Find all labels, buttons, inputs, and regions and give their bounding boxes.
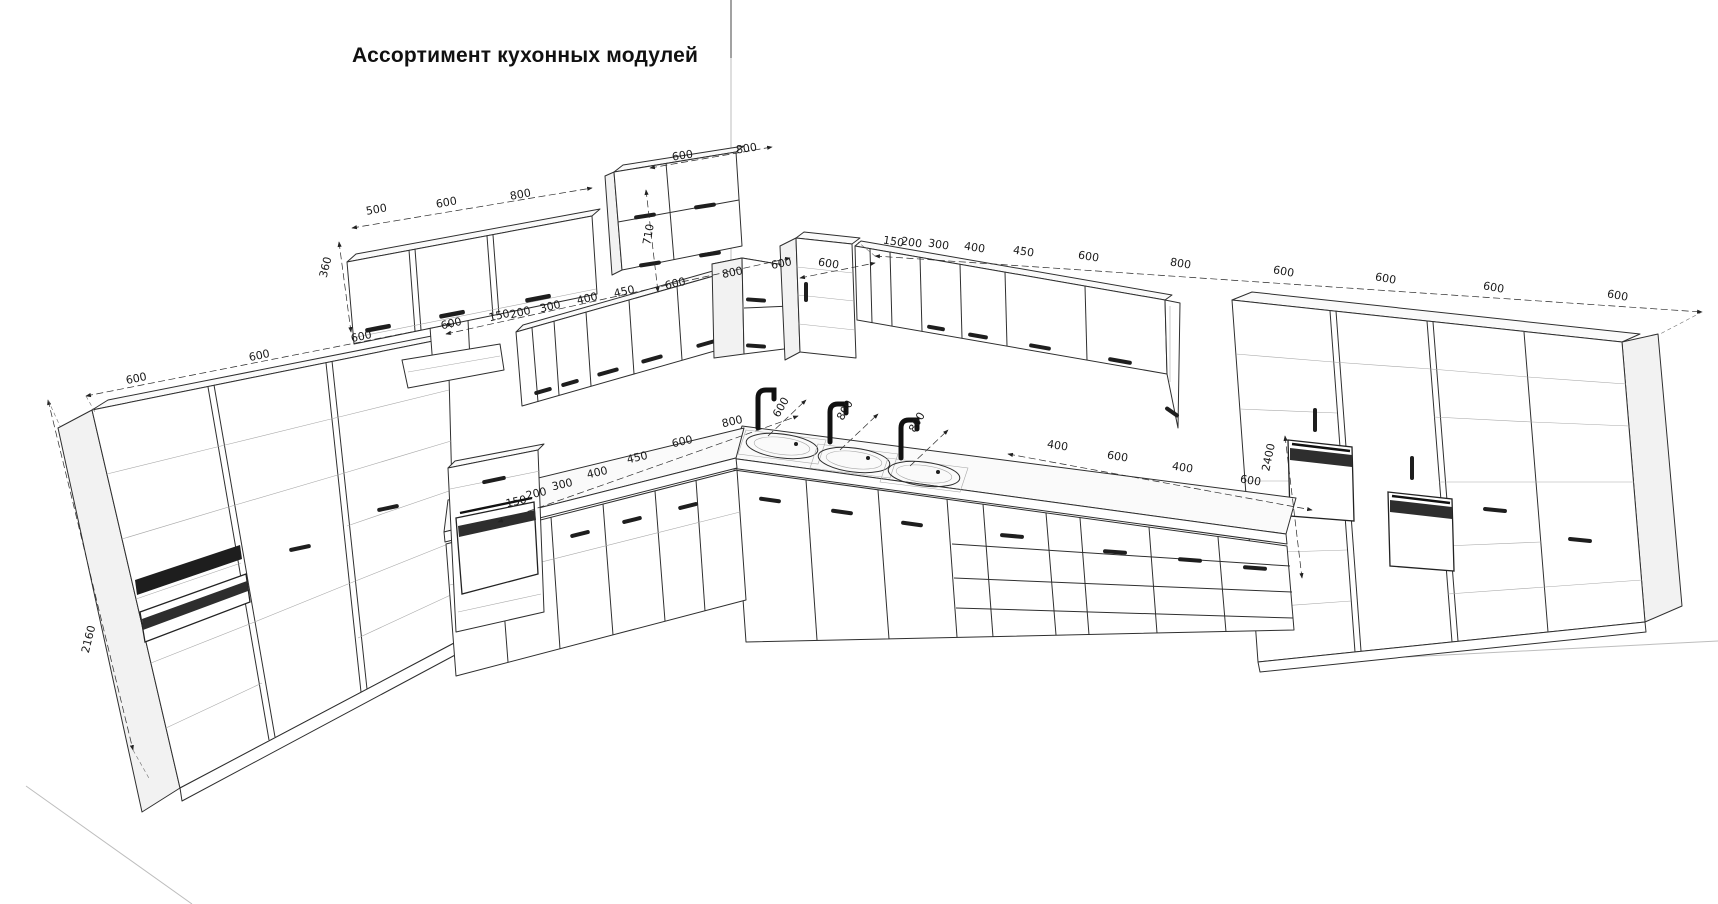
dim-label: 800 xyxy=(509,186,532,202)
dim-label: 600 xyxy=(435,194,458,210)
dim-label: 600 xyxy=(1077,248,1100,264)
built-in-oven xyxy=(1288,440,1354,521)
dim-label: 800 xyxy=(721,413,744,430)
dim-label: 450 xyxy=(1012,243,1035,259)
oven-housing-column xyxy=(448,444,544,632)
built-in-oven xyxy=(1388,492,1454,571)
dim-label: 500 xyxy=(365,201,388,217)
right-wall-cabinet-row xyxy=(855,241,1180,428)
dim-label: 800 xyxy=(735,140,758,156)
dim-label: 800 xyxy=(906,410,928,435)
dim-label: 800 xyxy=(1169,255,1192,271)
left-tall-cabinet-run xyxy=(58,330,462,812)
dim-label: 600 xyxy=(1272,263,1295,279)
door-handle xyxy=(1313,408,1317,432)
dim-label: 600 xyxy=(1374,270,1397,286)
dim-label: 400 xyxy=(1046,437,1069,453)
middle-wall-cabinet xyxy=(605,146,744,275)
dim-label: 400 xyxy=(1171,459,1194,475)
kitchen-line-drawing: 6006006002160360500600800710600800600150… xyxy=(0,0,1718,904)
right-base-run xyxy=(730,390,1296,642)
dim-label: 600 xyxy=(1482,279,1505,295)
dim-label: 2160 xyxy=(79,624,98,654)
dim-label: 600 xyxy=(125,370,148,387)
dim-label: 400 xyxy=(963,239,986,255)
dim-label: 360 xyxy=(317,255,335,279)
door-handle xyxy=(804,282,808,302)
door-handle xyxy=(1410,456,1414,480)
right-tall-cabinet-run xyxy=(1232,292,1682,672)
dim-label: 600 xyxy=(1606,287,1629,303)
dim-label: 600 xyxy=(1106,448,1129,464)
dim-label: 600 xyxy=(248,347,271,364)
right-first-wall-cabinet xyxy=(780,232,860,360)
kitchen-assortment-drawing: Ассортимент кухонных модулей xyxy=(0,0,1718,904)
dim-label: 300 xyxy=(927,236,950,252)
dim-label: 600 xyxy=(1239,472,1262,488)
